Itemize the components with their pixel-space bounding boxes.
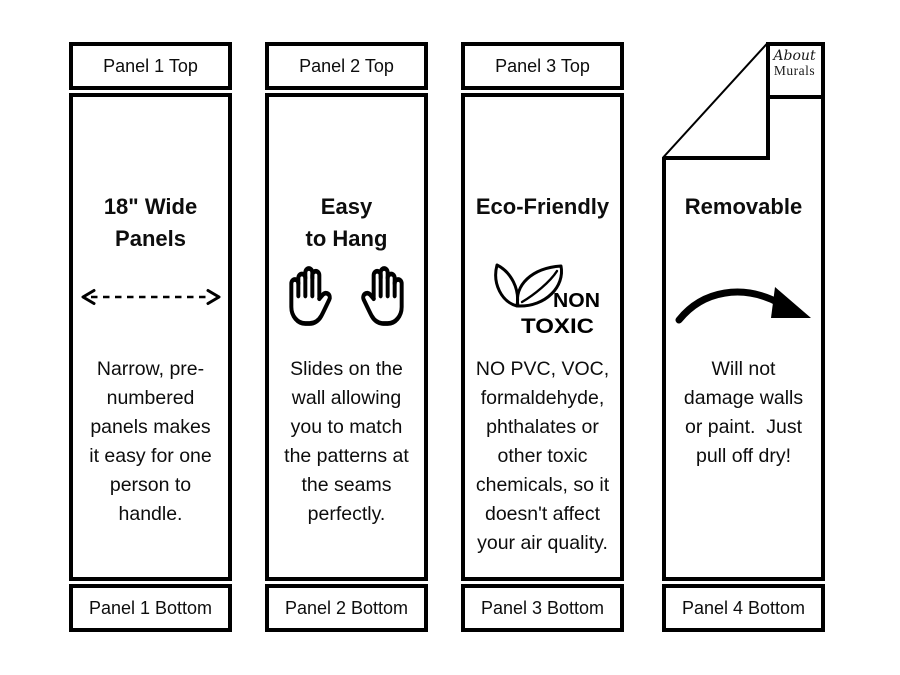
panel-1: Panel 1 Top 18" Wide Panels Narrow, pre-… — [69, 42, 232, 632]
panel-2-icon-wrap — [269, 263, 424, 329]
panel-1-icon-wrap — [73, 288, 228, 306]
logo-brand-bottom: Murals — [766, 64, 823, 79]
panel-2-top-label-box: Panel 2 Top — [265, 42, 428, 90]
panel-1-bottom-label-box: Panel 1 Bottom — [69, 584, 232, 632]
panel-3-bottom-label: Panel 3 Bottom — [481, 598, 604, 619]
panel-2-bottom-label-box: Panel 2 Bottom — [265, 584, 428, 632]
panel-4-title: Removable — [662, 191, 825, 223]
aboutmurals-logo: About Murals — [766, 49, 823, 97]
panel-3-icon-wrap: NON TOXIC — [465, 258, 620, 338]
logo-brand-top: About — [766, 49, 823, 64]
panel-1-text: Narrow, pre- numbered panels makes it ea… — [73, 355, 228, 529]
panel-2-top-label: Panel 2 Top — [299, 56, 394, 77]
panel-3-text: NO PVC, VOC, formaldehyde, phthalates or… — [465, 355, 620, 558]
dashed-width-arrow-icon — [78, 288, 224, 306]
panel-2: Panel 2 Top Easy to Hang Slides on the w — [265, 42, 428, 632]
panel-1-top-label: Panel 1 Top — [103, 56, 198, 77]
panel-1-body: 18" Wide Panels Narrow, pre- numbered pa… — [69, 93, 232, 581]
panel-2-body: Easy to Hang Slides on the wall allowing… — [265, 93, 428, 581]
panel-2-bottom-label: Panel 2 Bottom — [285, 598, 408, 619]
panel-1-title: 18" Wide Panels — [73, 191, 228, 255]
curved-arrow-icon — [673, 276, 815, 326]
panel-4-bottom-label-box: Panel 4 Bottom — [662, 584, 825, 632]
panel-1-bottom-label: Panel 1 Bottom — [89, 598, 212, 619]
panel-3-bottom-label-box: Panel 3 Bottom — [461, 584, 624, 632]
panel-3-title: Eco-Friendly — [465, 191, 620, 223]
panel-3: Panel 3 Top Eco-Friendly NON TOXIC NO PV… — [461, 42, 624, 632]
right-hand-icon — [355, 263, 411, 329]
panel-1-top-label-box: Panel 1 Top — [69, 42, 232, 90]
panel-3-top-label-box: Panel 3 Top — [461, 42, 624, 90]
panel-4-text: Will not damage walls or paint. Just pul… — [662, 355, 825, 471]
panel-2-title: Easy to Hang — [269, 191, 424, 255]
non-label: NON — [553, 290, 600, 312]
panel-2-text: Slides on the wall allowing you to match… — [269, 355, 424, 529]
panel-4-icon-wrap — [662, 276, 825, 326]
non-toxic-leaves-icon: NON TOXIC — [480, 258, 606, 338]
panel-4: About Murals Removable Will not damage w… — [662, 42, 825, 632]
panel-3-body: Eco-Friendly NON TOXIC NO PVC, VOC, form… — [461, 93, 624, 581]
infographic-canvas: Panel 1 Top 18" Wide Panels Narrow, pre-… — [0, 0, 900, 675]
toxic-label: TOXIC — [521, 315, 594, 338]
left-hand-icon — [282, 263, 338, 329]
panel-3-top-label: Panel 3 Top — [495, 56, 590, 77]
panel-4-bottom-label: Panel 4 Bottom — [682, 598, 805, 619]
